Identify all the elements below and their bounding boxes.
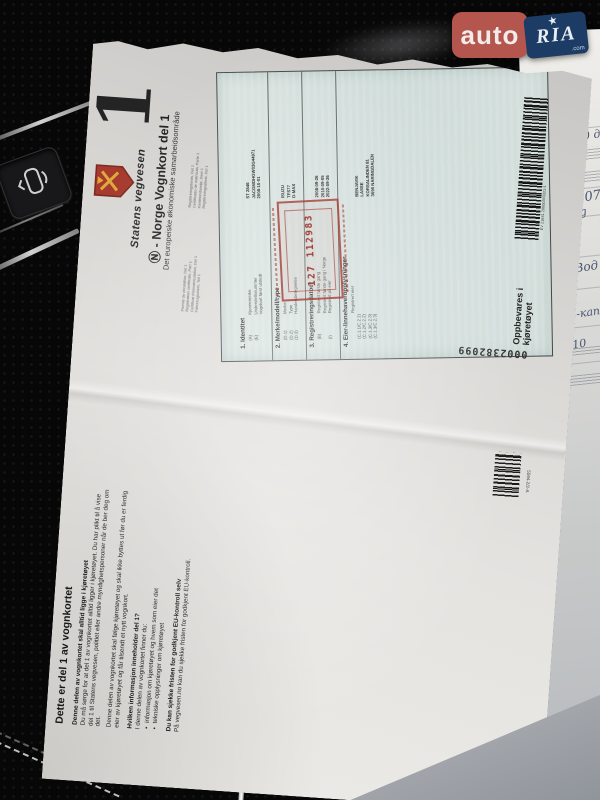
- field-code: (C.1.3/C.2.3): [372, 298, 378, 338]
- info-column: Dette er del 1 av vognkortet Denne delen…: [54, 486, 201, 733]
- red-registration-stamp: 127 112983: [277, 199, 344, 302]
- auto-label: auto: [461, 22, 520, 48]
- autoria-auto-chip: auto: [452, 12, 528, 58]
- stamp-inner-frame: 127 112983: [284, 208, 336, 292]
- vognkort-document: 1 Statens vegvesen Ⓝ - Norge Vognkort de…: [42, 36, 593, 800]
- multilingual-titles: Permis de circulation, Del 1 Registratio…: [181, 196, 208, 313]
- stamp-number: 127 112983: [303, 214, 318, 287]
- handwriting: -кап.: [575, 304, 600, 321]
- door-lock-button: [0, 145, 74, 221]
- document-part-number: 1: [87, 78, 162, 133]
- autoria-ria-chip: ★ RIA .com: [523, 11, 589, 59]
- barcode-small: [493, 452, 522, 498]
- field-value: 2008-10-01: [254, 78, 261, 198]
- field-label: Vognkort først utstedt: [257, 214, 264, 314]
- field-value: D-MAX: [289, 78, 296, 198]
- autoria-watermark: auto ★ RIA .com: [452, 12, 587, 58]
- form-section-identitet: 1. Identitet (A)KjennemerkeST 2846 (E)Un…: [233, 72, 265, 360]
- vehicle-data-form: 1. Identitet (A)KjennemerkeST 2846 (E)Un…: [216, 66, 553, 362]
- field-value: 2022-09-26: [323, 77, 330, 197]
- domain-label: .com: [571, 45, 585, 52]
- field-value: 3090 NARINGDALEN: [368, 76, 375, 196]
- form-code: 5594-2/2-A: [525, 470, 532, 493]
- car-interior-photo: д /40 дв 95076 лg Вод 3 -кап. / 10 1 Sta…: [0, 0, 600, 800]
- door-trim-strip: [0, 99, 97, 141]
- multilingual-titles: Registreringsbevis, Del 1 Certificado de…: [188, 92, 215, 209]
- door-trim-strip: [0, 228, 80, 272]
- paper-crease: [68, 379, 567, 462]
- car-lock-icon: [9, 158, 60, 208]
